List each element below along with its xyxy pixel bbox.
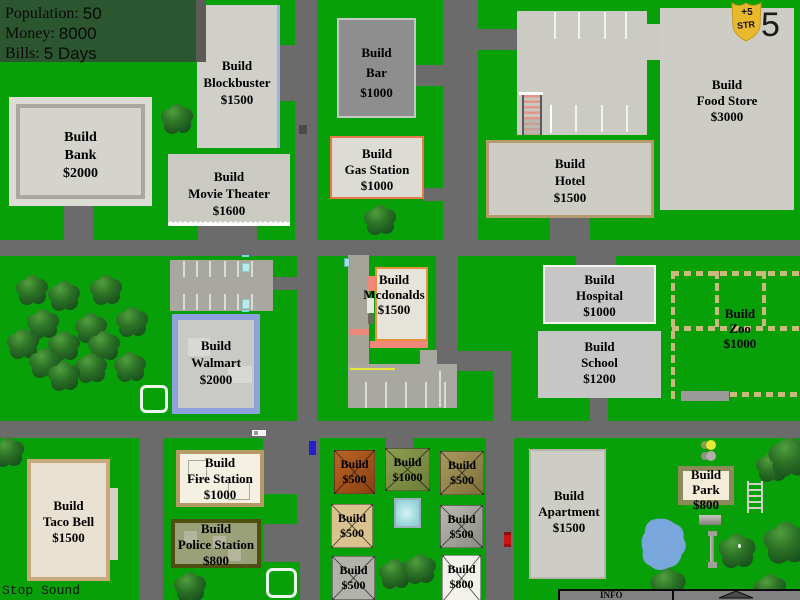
svg-text:STR: STR — [737, 19, 756, 31]
svg-text:+5: +5 — [741, 7, 753, 18]
